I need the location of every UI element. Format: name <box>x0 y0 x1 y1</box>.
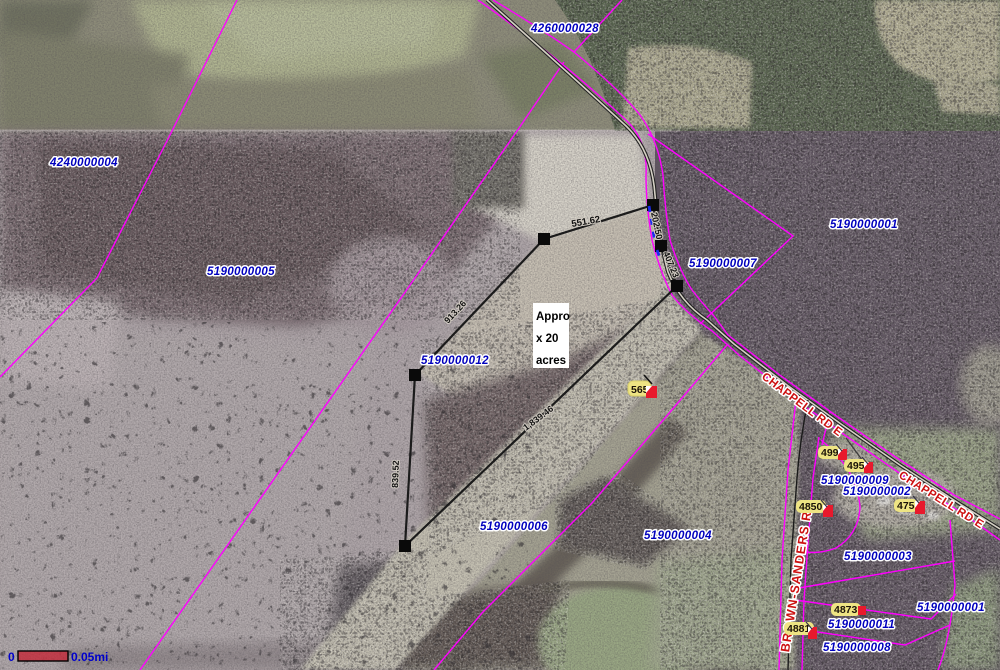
svg-text:acres: acres <box>536 355 566 367</box>
svg-text:5190000004: 5190000004 <box>644 530 712 542</box>
svg-text:5190000005: 5190000005 <box>207 266 275 278</box>
svg-text:5190000011: 5190000011 <box>828 619 895 631</box>
svg-text:5190000001: 5190000001 <box>917 602 985 614</box>
svg-text:4881: 4881 <box>787 623 811 635</box>
svg-text:839.52: 839.52 <box>390 460 401 488</box>
svg-text:Appro: Appro <box>536 311 570 323</box>
svg-text:495: 495 <box>847 460 865 472</box>
svg-text:4873: 4873 <box>834 604 858 616</box>
svg-text:5190000012: 5190000012 <box>421 355 489 367</box>
svg-text:5190000008: 5190000008 <box>823 642 891 654</box>
svg-text:4240000004: 4240000004 <box>49 157 118 169</box>
svg-text:4850: 4850 <box>799 501 823 513</box>
svg-text:475: 475 <box>897 500 915 512</box>
svg-text:x 20: x 20 <box>536 333 558 345</box>
svg-text:499: 499 <box>821 447 839 459</box>
svg-text:5190000001: 5190000001 <box>830 219 898 231</box>
svg-text:0: 0 <box>8 650 15 664</box>
svg-text:5190000002: 5190000002 <box>843 486 911 498</box>
svg-text:5190000007: 5190000007 <box>689 258 757 270</box>
svg-text:5190000006: 5190000006 <box>480 521 548 533</box>
svg-text:5190000003: 5190000003 <box>844 551 912 563</box>
svg-text:0.05mi: 0.05mi <box>71 650 108 664</box>
svg-text:4260000028: 4260000028 <box>530 23 599 35</box>
